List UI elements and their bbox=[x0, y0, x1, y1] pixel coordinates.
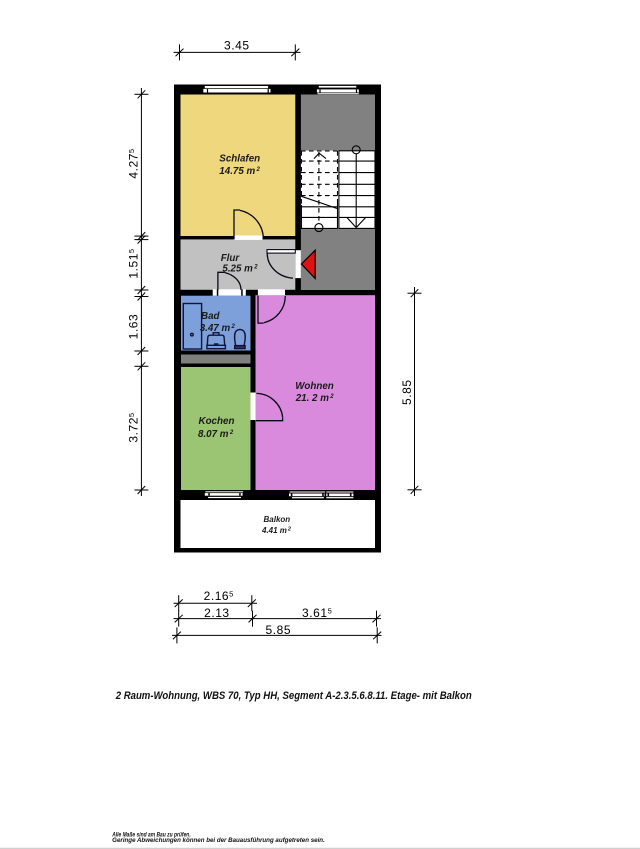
svg-text:3.45: 3.45 bbox=[224, 39, 250, 53]
svg-text:21. 2 m2: 21. 2 m2 bbox=[295, 393, 335, 404]
svg-text:Flur: Flur bbox=[221, 253, 241, 264]
svg-text:Kochen: Kochen bbox=[199, 416, 235, 427]
svg-text:5.85: 5.85 bbox=[266, 623, 292, 637]
svg-text:3.47 m2: 3.47 m2 bbox=[200, 323, 236, 334]
svg-text:4.41 m2: 4.41 m2 bbox=[261, 526, 291, 535]
svg-text:Geringe Abweichungen können be: Geringe Abweichungen können bei der Baua… bbox=[112, 838, 325, 844]
svg-text:Bad: Bad bbox=[201, 311, 221, 322]
svg-text:5.85: 5.85 bbox=[400, 379, 414, 405]
svg-text:Balkon: Balkon bbox=[264, 515, 291, 524]
svg-text:Wohnen: Wohnen bbox=[295, 381, 333, 392]
svg-text:8.07 m2: 8.07 m2 bbox=[198, 429, 234, 440]
svg-text:2.13: 2.13 bbox=[204, 606, 230, 620]
svg-text:5.25 m2: 5.25 m2 bbox=[222, 264, 258, 275]
svg-text:14.75 m2: 14.75 m2 bbox=[219, 166, 260, 177]
svg-text:Schlafen: Schlafen bbox=[219, 154, 260, 165]
svg-text:2 Raum-Wohnung, WBS 70, Typ HH: 2 Raum-Wohnung, WBS 70, Typ HH, Segment … bbox=[115, 690, 472, 702]
svg-text:1.63: 1.63 bbox=[126, 314, 140, 340]
